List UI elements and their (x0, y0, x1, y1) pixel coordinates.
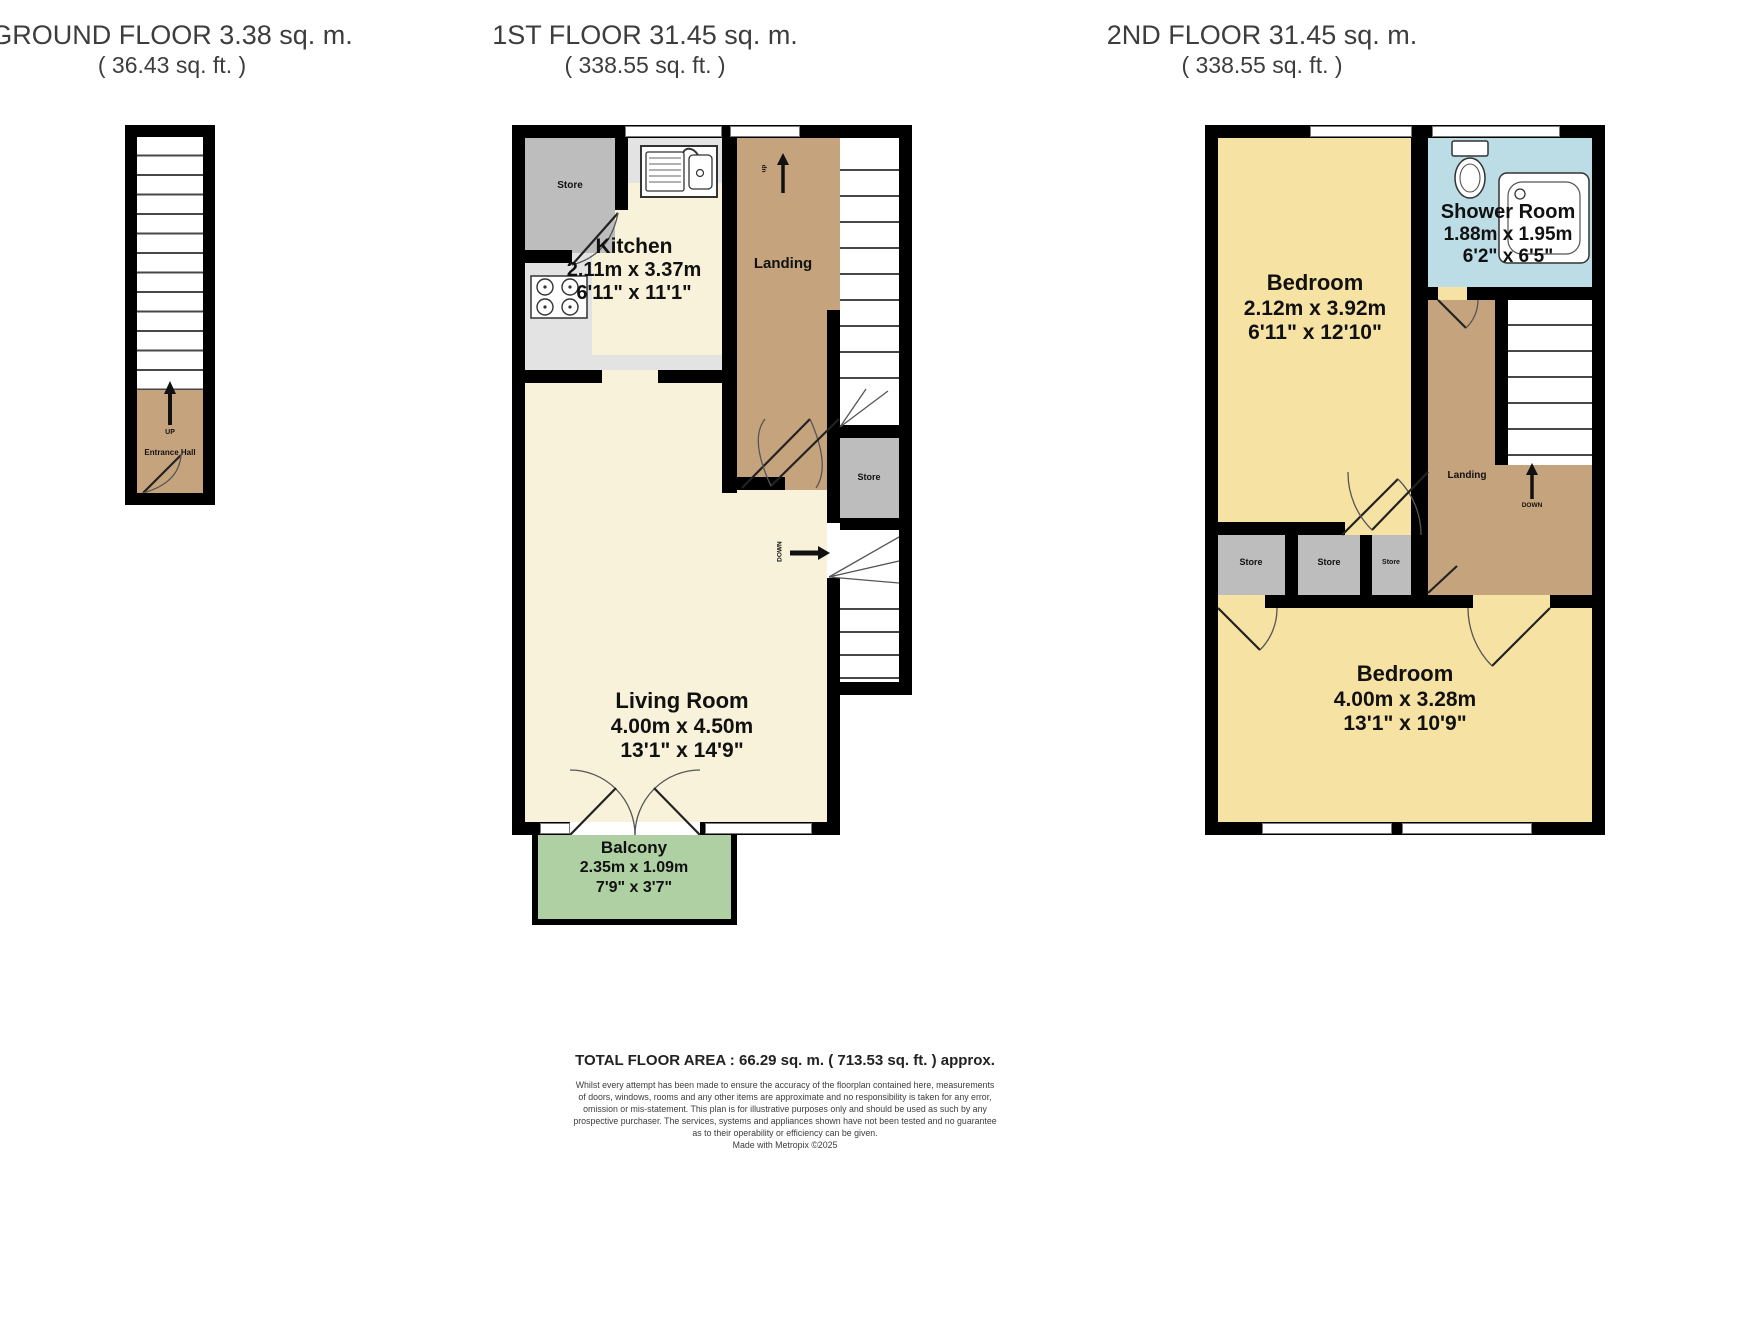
total-floor-area: TOTAL FLOOR AREA : 66.29 sq. m. ( 713.53… (575, 1052, 995, 1069)
doors-overlay (137, 443, 203, 493)
first-floor-title: 1ST FLOOR 31.45 sq. m. (492, 20, 798, 51)
stair-down-label: DOWN (1522, 502, 1543, 509)
living-room-imperial: 13'1" x 14'9" (620, 739, 743, 762)
kitchen-metric: 2.11m x 3.37m (567, 259, 702, 281)
made-with-label: Made with Metropix ©2025 (733, 1140, 838, 1150)
wall (532, 835, 538, 925)
down-arrow-icon (1525, 461, 1539, 501)
bedroom-small-metric: 2.12m x 3.92m (1244, 297, 1386, 320)
store3-label: Store (1382, 559, 1400, 567)
second-floor-title: 2ND FLOOR 31.45 sq. m. (1107, 20, 1418, 51)
stair-up-label: up (760, 165, 767, 173)
stair-store-label: Store (857, 473, 880, 483)
kitchen-store-label: Store (557, 180, 583, 191)
balcony: Balcony 2.35m x 1.09m 7'9" x 3'7" (532, 835, 737, 925)
down-arrow-icon (788, 543, 832, 563)
ground-floor-subtitle: ( 36.43 sq. ft. ) (98, 52, 246, 79)
toilet-icon (1448, 140, 1492, 202)
second-floor-subtitle: ( 338.55 sq. ft. ) (1181, 52, 1342, 79)
disclaimer-line: prospective purchaser. The services, sys… (573, 1116, 996, 1126)
landing-label: Landing (754, 256, 812, 273)
ground-up-label: UP (165, 429, 175, 437)
bedroom-small-imperial: 6'11" x 12'10" (1248, 321, 1382, 344)
bedroom-large-name: Bedroom (1357, 662, 1454, 686)
stair-down-label: DOWN (776, 541, 783, 562)
balcony-metric: 2.35m x 1.09m (580, 859, 689, 877)
ground-floor-plan: UP Entrance Hall (125, 125, 215, 505)
disclaimer-line: as to their operability or efficiency ca… (692, 1128, 877, 1138)
ground-staircase (137, 137, 203, 390)
living-room-name: Living Room (615, 689, 748, 713)
store2-label: Store (1317, 558, 1340, 568)
second-floor-plan: Bedroom 2.12m x 3.92m 6'11" x 12'10" Sho… (1205, 125, 1605, 835)
ground-floor-title: GROUND FLOOR 3.38 sq. m. (0, 20, 353, 51)
balcony-imperial: 7'9" x 3'7" (596, 879, 672, 897)
up-arrow-icon (776, 151, 790, 195)
bedroom-large-imperial: 13'1" x 10'9" (1343, 712, 1466, 735)
disclaimer-line: Whilst every attempt has been made to en… (576, 1080, 995, 1090)
floorplan-canvas: GROUND FLOOR 3.38 sq. m. ( 36.43 sq. ft.… (0, 0, 1753, 1317)
kitchen-imperial: 6'11" x 11'1" (576, 282, 691, 304)
wall (532, 919, 737, 925)
wall (731, 835, 737, 925)
shower-room-metric: 1.88m x 1.95m (1444, 225, 1573, 246)
landing-label: Landing (1448, 470, 1487, 481)
shower-room-name: Shower Room (1441, 201, 1575, 223)
kitchen-name: Kitchen (595, 235, 672, 258)
shower-room-imperial: 6'2" x 6'5" (1463, 247, 1553, 268)
living-room-metric: 4.00m x 4.50m (611, 715, 753, 738)
disclaimer-line: of doors, windows, rooms and any other i… (578, 1092, 991, 1102)
bedroom-small-name: Bedroom (1267, 271, 1364, 295)
first-floor-plan: Store Kitchen 2.11m x 3.37m 6'11" x 11'1… (512, 125, 912, 835)
up-arrow-icon (163, 379, 177, 427)
kitchen-sink-icon (640, 145, 718, 198)
balcony-name: Balcony (601, 839, 667, 858)
first-floor-subtitle: ( 338.55 sq. ft. ) (564, 52, 725, 79)
disclaimer-line: omission or mis-statement. This plan is … (583, 1104, 987, 1114)
store1-label: Store (1239, 558, 1262, 568)
bedroom-large-metric: 4.00m x 3.28m (1334, 688, 1476, 711)
